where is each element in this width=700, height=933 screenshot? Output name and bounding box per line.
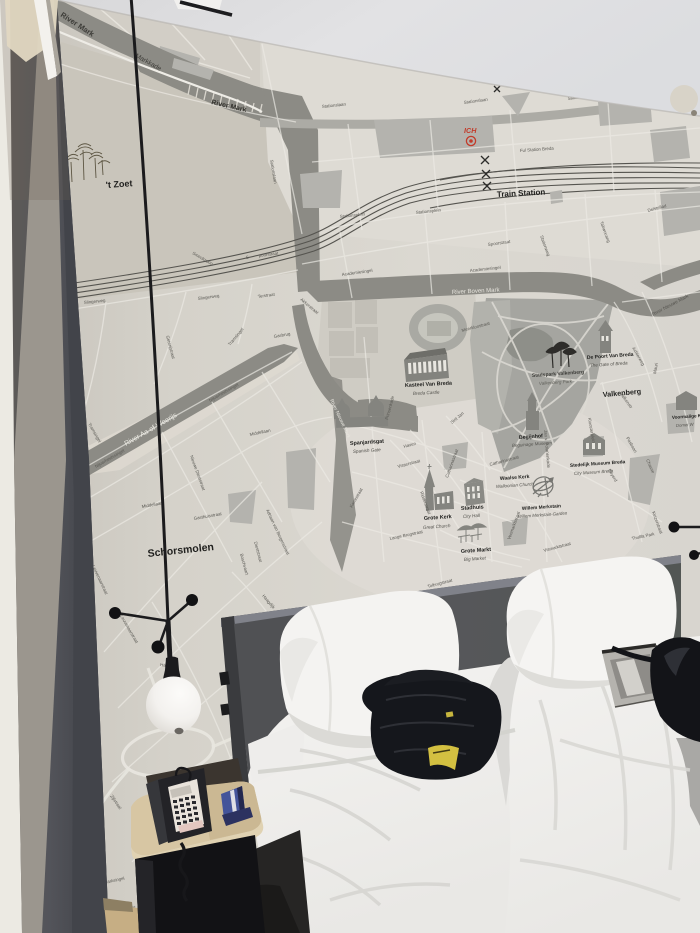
svg-text:'t Zoet: 't Zoet	[105, 178, 132, 190]
svg-text:ICH: ICH	[464, 126, 477, 135]
